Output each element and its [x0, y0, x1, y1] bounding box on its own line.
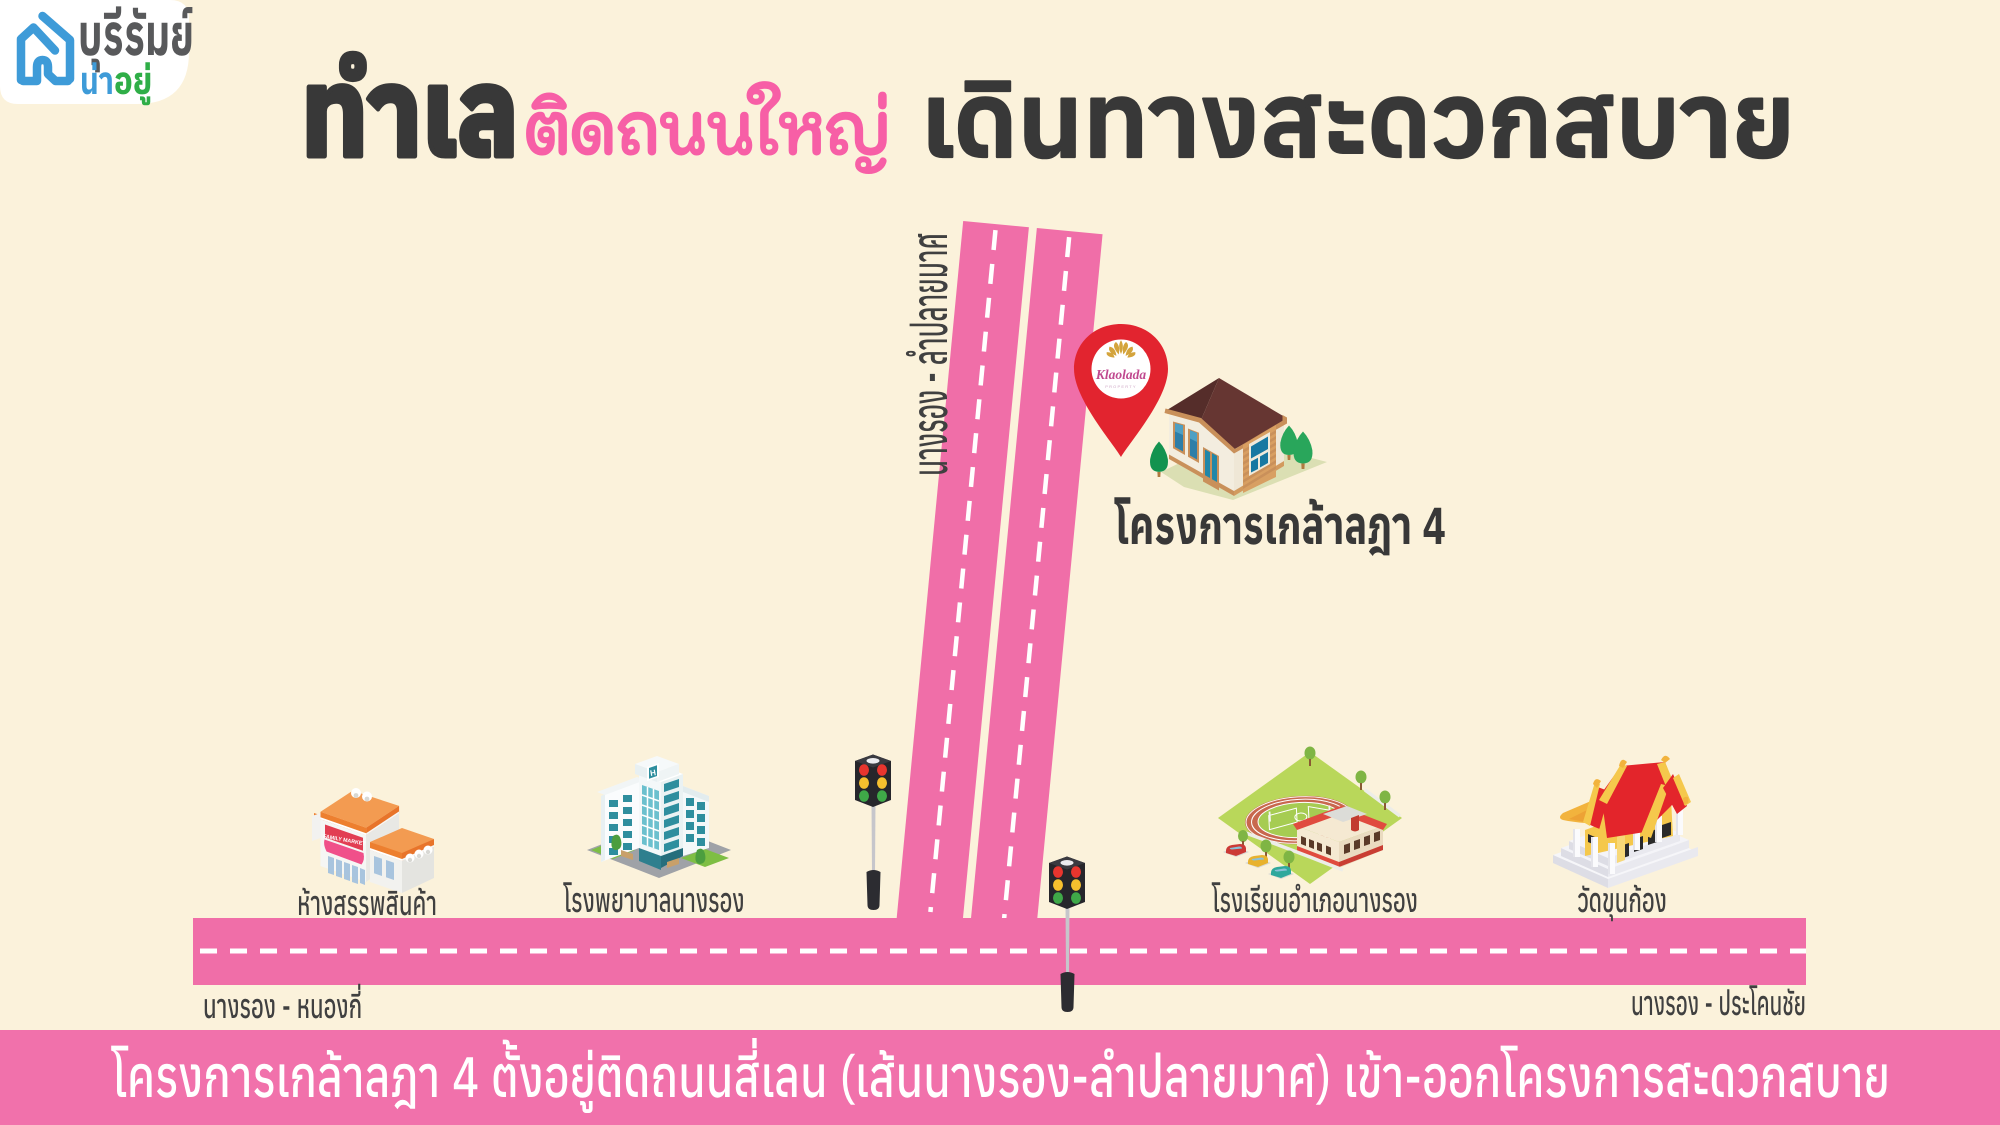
svg-text:PROPERTY: PROPERTY — [1105, 384, 1137, 389]
svg-text:Klaolada: Klaolada — [1095, 367, 1147, 382]
